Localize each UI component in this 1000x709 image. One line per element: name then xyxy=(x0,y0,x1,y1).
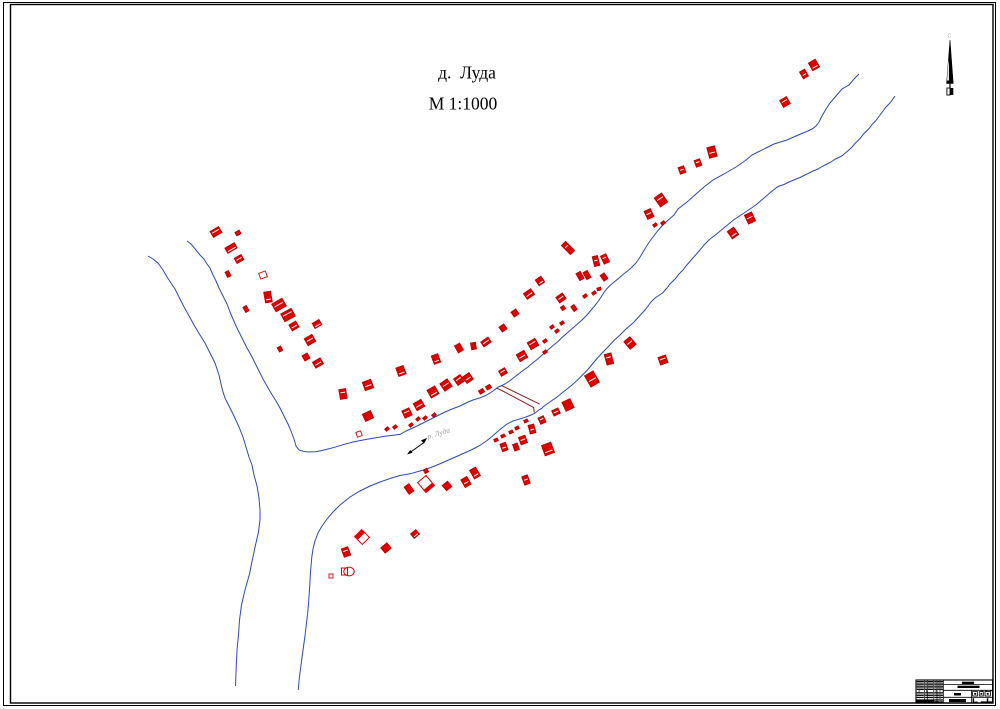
svg-text:С: С xyxy=(948,34,952,40)
svg-text:М 1:1000: М 1:1000 xyxy=(429,94,498,114)
svg-text:д. Луда: д. Луда xyxy=(438,63,496,83)
